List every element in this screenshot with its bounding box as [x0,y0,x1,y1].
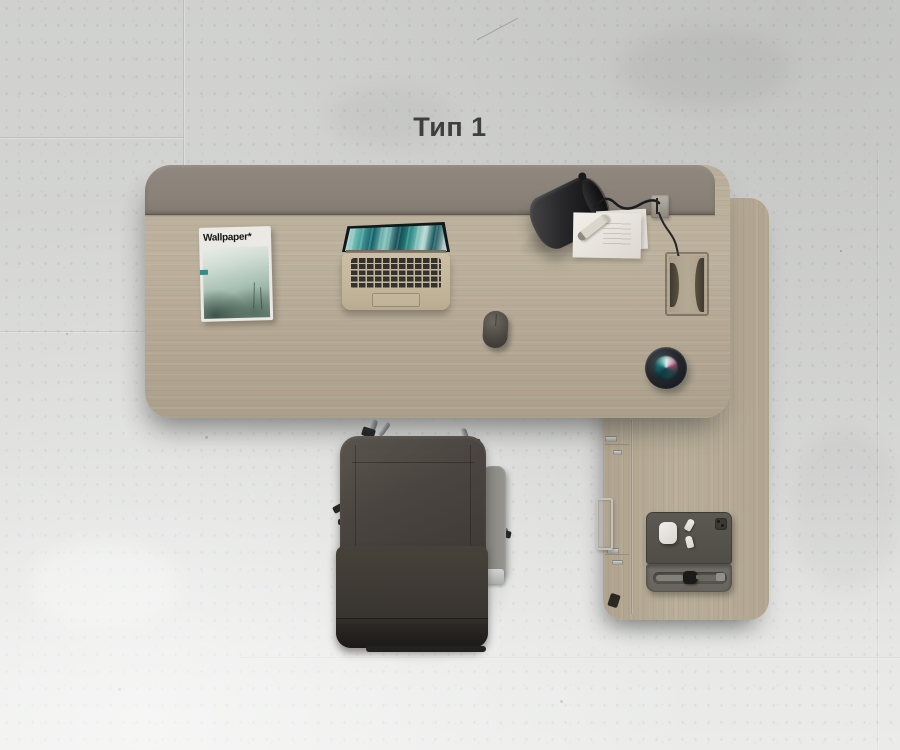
chair-seat [336,546,488,648]
smartwatch-band [656,575,684,581]
drawer-hinge [612,560,623,565]
upholstery-seam [355,445,356,551]
chair-backrest [340,436,486,558]
scene: Тип 1 [0,0,900,750]
drawer-hinge [613,450,622,455]
upholstery-seam [352,462,474,463]
drawer-handle [596,498,613,550]
smartwatch-face [683,571,697,584]
earbuds-case [659,522,677,544]
camera-lens [721,524,724,527]
drawer-hinge [605,436,617,442]
drawer-gap [605,444,629,445]
seat-front-fold [336,619,488,648]
device-tray [646,512,732,592]
lamp-arm-and-cables [145,165,730,418]
main-desk: Wallpaper* [145,165,730,418]
scene-title: Тип 1 [0,112,900,143]
earbud [685,535,695,548]
cable-grommet [665,252,709,316]
camera-lens [717,520,720,523]
cable-notch [607,593,621,608]
cabinet-seam [631,420,632,614]
tray-lower-section [646,564,732,592]
chair-base-edge [366,646,486,652]
mouse-seam [495,314,497,326]
drawer-gap [605,554,629,555]
watch-clasp [716,573,725,581]
tablet-camera-module [715,518,727,530]
upholstery-seam [470,445,471,551]
earbud [684,518,696,532]
computer-mouse [482,310,509,348]
speaker-display [654,356,678,380]
tablet [646,512,732,564]
smart-speaker [645,347,687,389]
grommet-opening [695,258,704,312]
